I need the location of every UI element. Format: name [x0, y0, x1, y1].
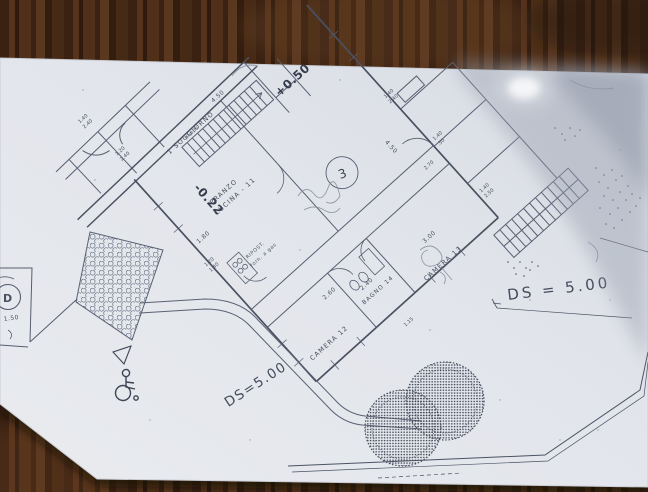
- light-spot: [508, 77, 540, 99]
- parking-letter: D: [3, 292, 12, 305]
- floor-plan-photo: 3 +0.50 -0.22 1 SOGGIORNO PRANZO CUCINA …: [0, 0, 648, 492]
- photo-of-floor-plan: 3 +0.50 -0.22 1 SOGGIORNO PRANZO CUCINA …: [0, 0, 648, 492]
